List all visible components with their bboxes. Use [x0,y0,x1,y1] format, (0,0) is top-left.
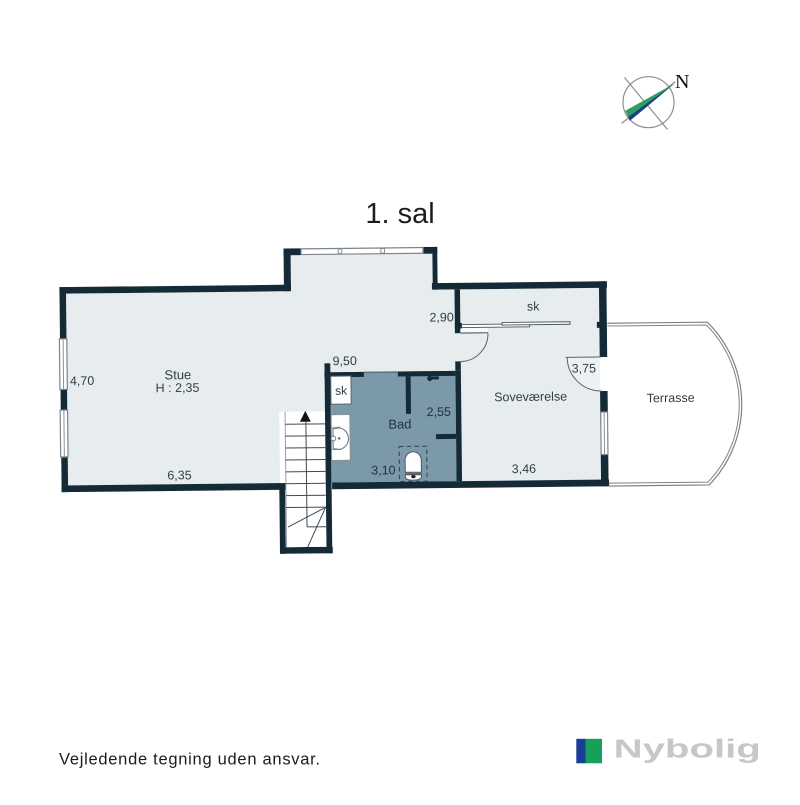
svg-text:sk: sk [335,384,348,398]
svg-text:sk: sk [527,299,540,313]
svg-text:1. sal: 1. sal [365,198,434,230]
svg-text:2,55: 2,55 [427,405,452,419]
svg-text:Vejledende tegning uden ansvar: Vejledende tegning uden ansvar. [59,751,321,769]
svg-text:Nybolig: Nybolig [614,736,761,764]
svg-text:Soveværelse: Soveværelse [494,389,567,404]
svg-text:9,50: 9,50 [332,354,357,368]
svg-text:6,35: 6,35 [167,468,192,482]
svg-text:H : 2,35: H : 2,35 [156,381,200,395]
svg-text:4,70: 4,70 [70,374,95,388]
svg-text:2,90: 2,90 [429,310,454,324]
svg-text:Bad: Bad [388,416,411,431]
svg-text:3,46: 3,46 [512,462,537,476]
svg-text:N: N [675,71,689,93]
svg-text:Terrasse: Terrasse [647,391,695,406]
svg-text:3,75: 3,75 [572,361,597,375]
svg-text:3,10: 3,10 [371,463,396,477]
